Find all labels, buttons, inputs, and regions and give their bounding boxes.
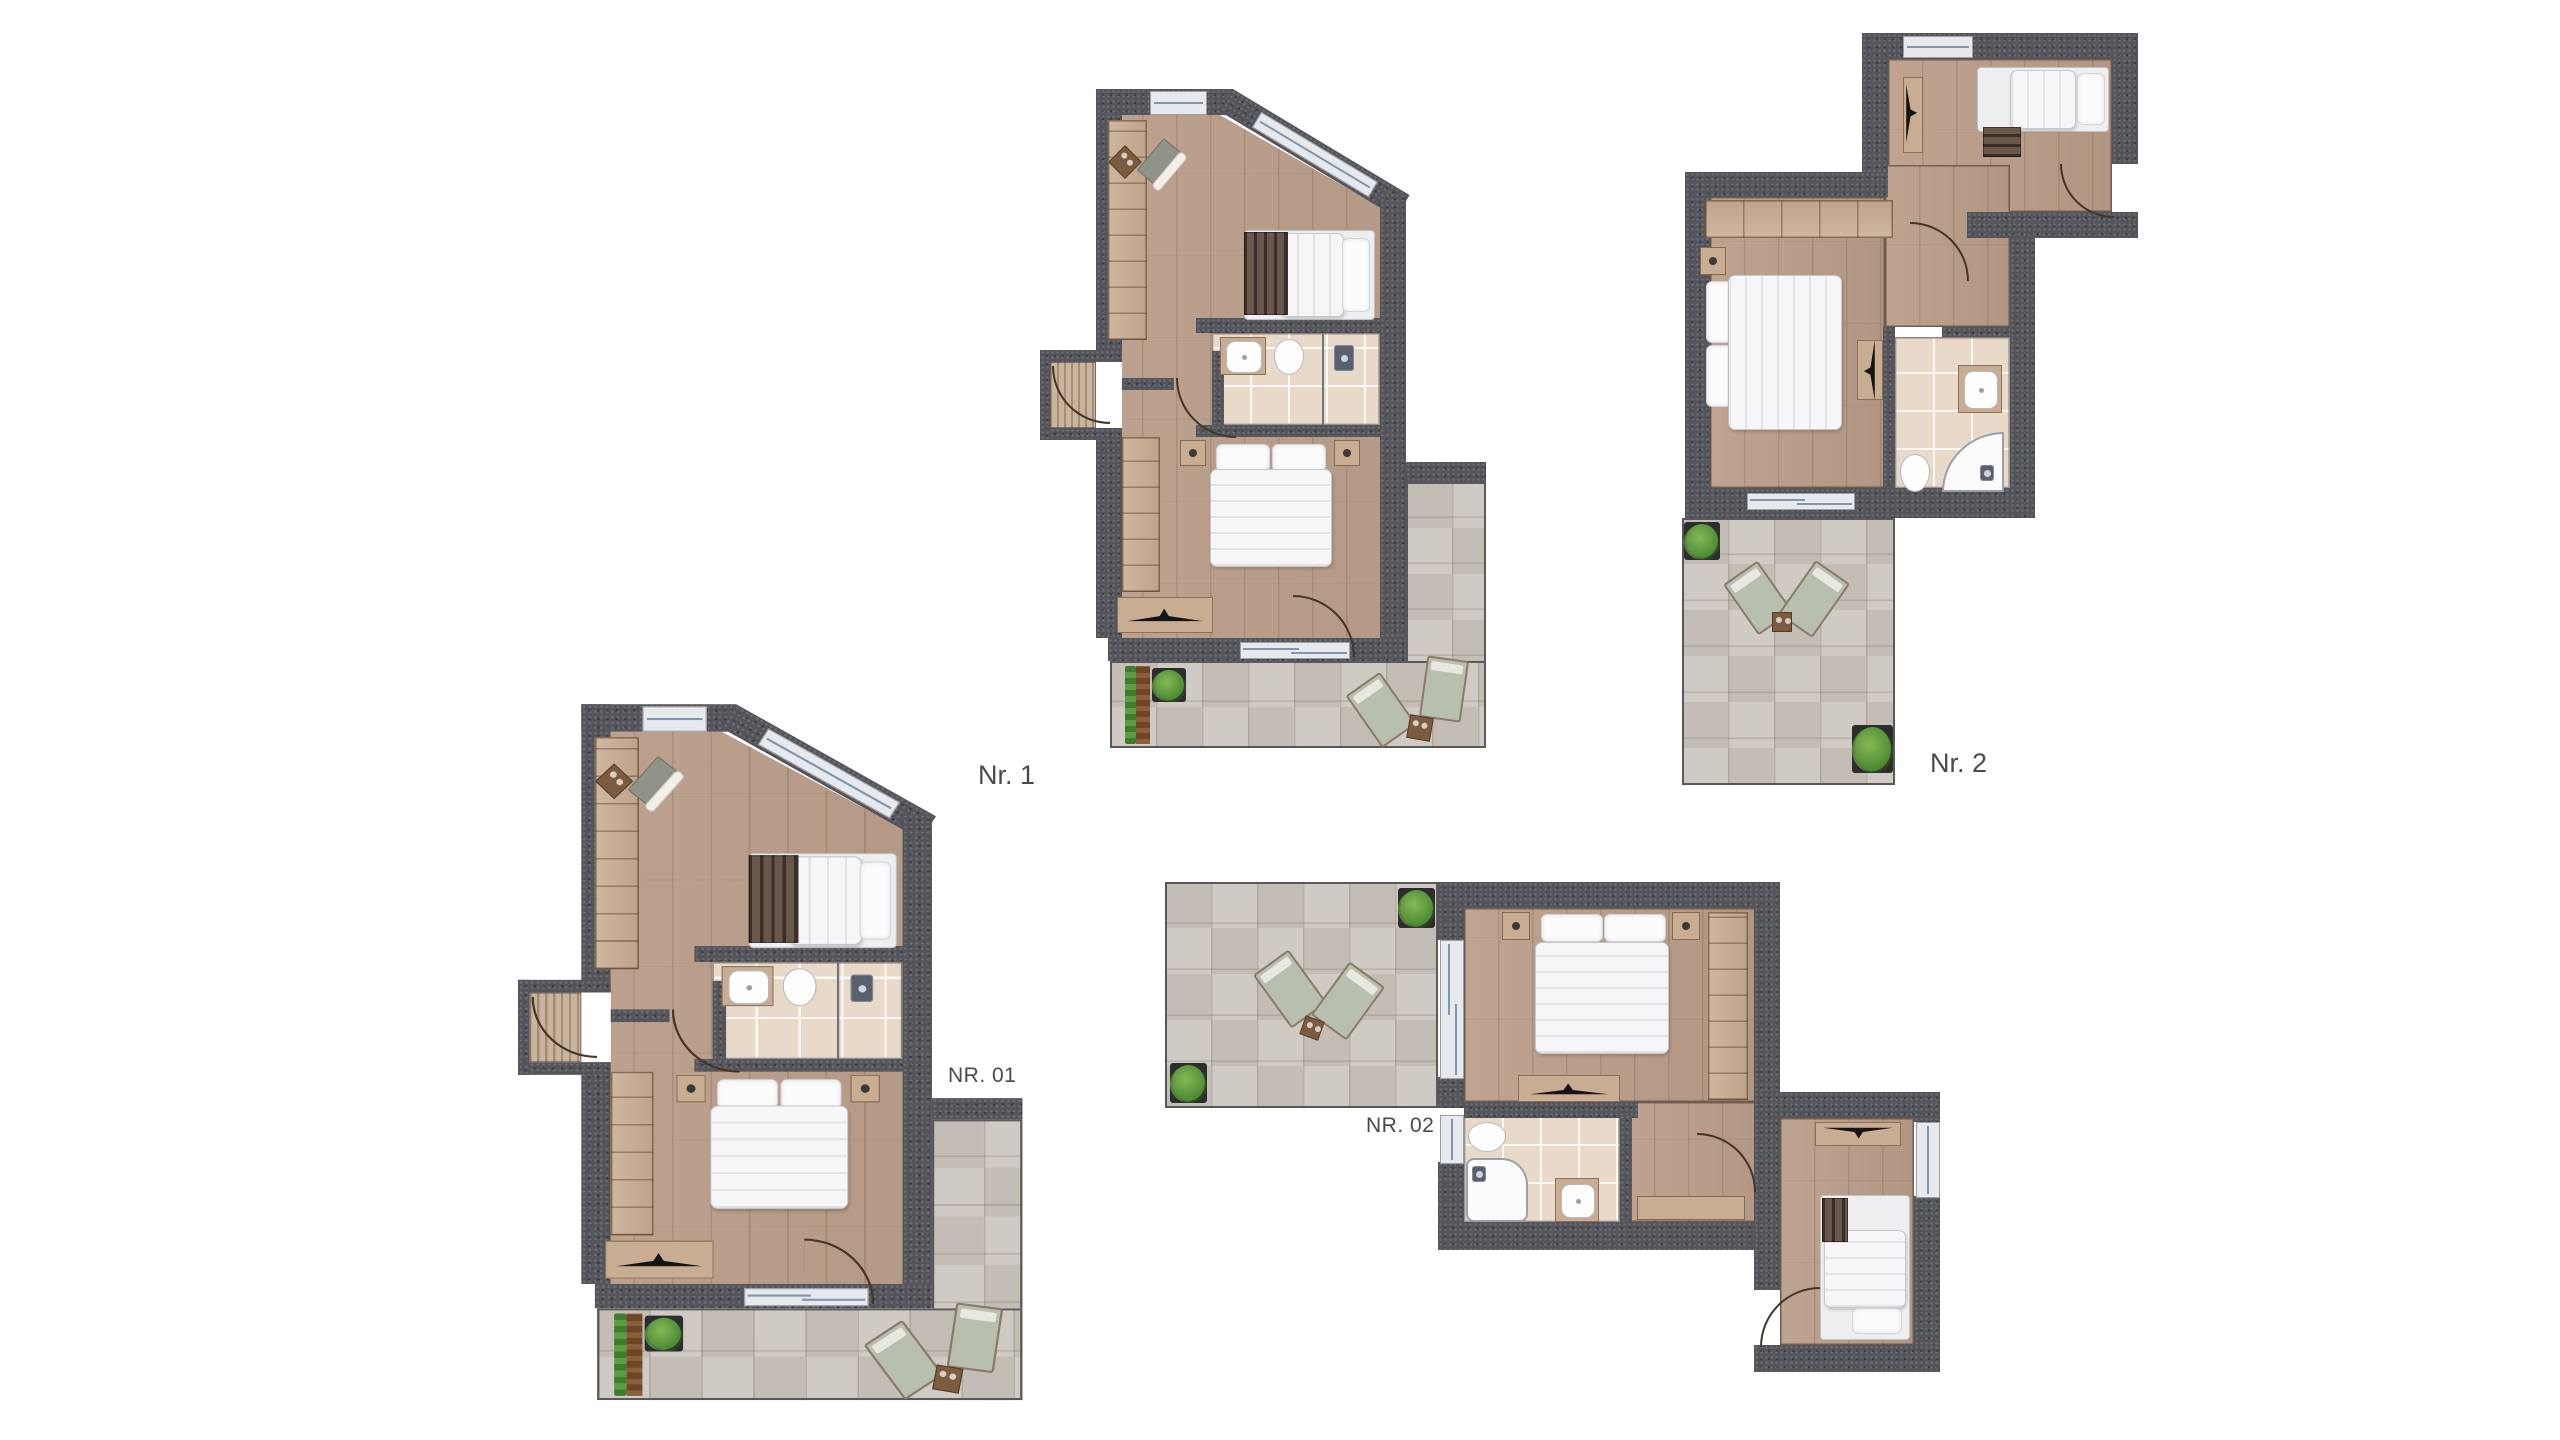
detail-shape: [1682, 922, 1690, 930]
hedge-planter: [1136, 666, 1150, 744]
wardrobe: [1705, 200, 1893, 238]
tv-sideboard: [1117, 597, 1213, 633]
double-bed-duvet: [1535, 942, 1669, 1054]
detail-shape: [1512, 922, 1520, 930]
detail-shape: [1776, 617, 1782, 623]
glass-partition: [837, 962, 839, 1059]
tv-icon: [1823, 1127, 1893, 1140]
wall-segment: [518, 980, 529, 1075]
SVGAnimatedString]: [1127, 609, 1203, 622]
detail-shape: [1709, 257, 1717, 265]
detail-shape: [1448, 944, 1450, 1015]
headboard-shelf: [749, 855, 799, 943]
pillow: [1541, 914, 1603, 942]
hedge: [614, 1314, 626, 1396]
headboard-shelf: [1244, 232, 1288, 315]
detail-shape: [1984, 470, 1991, 477]
pillow: [1272, 444, 1326, 472]
tv-icon: [1906, 85, 1919, 143]
glass-partition: [1322, 333, 1324, 425]
potted-plant: [1152, 668, 1186, 702]
pillow: [1604, 914, 1666, 942]
detail-shape: [1686, 524, 1718, 558]
detail-shape: [609, 770, 619, 779]
detail-shape: [1154, 102, 1203, 104]
shower-head: [851, 975, 874, 1002]
detail-shape: [1750, 499, 1805, 501]
tv-icon: [1863, 341, 1876, 401]
detail-shape: [1797, 503, 1852, 505]
wall-segment: [1862, 33, 1888, 172]
window: [1903, 36, 1973, 58]
sun-lounger: [947, 1302, 1004, 1373]
sink: [728, 970, 769, 1004]
plan-label-nr-2: Nr. 2: [1930, 748, 1987, 779]
wall-segment: [1380, 193, 1406, 638]
window: [1916, 1122, 1940, 1198]
detail-shape: [1172, 1065, 1205, 1101]
wall-segment: [1883, 327, 1895, 488]
potted-plant: [1398, 888, 1435, 928]
detail-shape: [1242, 355, 1247, 360]
tv-sideboard: [1857, 340, 1883, 400]
wall-segment: [694, 946, 902, 962]
detail-shape: [1907, 46, 1969, 48]
SVGAnimatedString]: [616, 1253, 702, 1266]
detail-shape: [647, 718, 702, 720]
detail-shape: [1431, 661, 1464, 674]
wall-segment: [1464, 1102, 1638, 1118]
detail-shape: [1476, 1171, 1483, 1178]
wall-segment: [611, 1009, 670, 1022]
sliding-door: [1440, 940, 1464, 1079]
bathroom-window: [1440, 1115, 1464, 1164]
double-bed-duvet: [1210, 469, 1332, 567]
plan-label-nr-02: NR. 02: [1366, 1114, 1434, 1138]
wall-segment: [1040, 350, 1050, 440]
potted-plant: [1170, 1063, 1207, 1103]
hedge: [1125, 666, 1136, 744]
wall-segment: [1438, 1077, 1464, 1108]
detail-shape: [858, 985, 866, 992]
plan-label-nr-01: NR. 01: [948, 1064, 1016, 1088]
plan-label-nr-1: Nr. 1: [978, 760, 1035, 791]
wall-segment: [903, 814, 932, 1284]
wall-segment: [1438, 1222, 1632, 1250]
nightstand: [1700, 247, 1726, 275]
detail-shape: [647, 1318, 681, 1350]
floor-plan-nr-2: [1680, 25, 2138, 787]
wall-segment: [1754, 882, 1780, 1094]
wardrobe: [611, 1072, 654, 1236]
wall-segment: [1040, 350, 1122, 362]
sun-lounger: [1419, 655, 1469, 722]
wardrobe: [1122, 437, 1160, 592]
tv-icon: [1530, 1082, 1608, 1095]
wall-segment: [1620, 1115, 1632, 1222]
potted-plant: [1684, 522, 1720, 560]
nightstand: [676, 1075, 705, 1102]
detail-shape: [1341, 355, 1348, 362]
nightstand: [851, 1075, 880, 1102]
tv-icon: [1127, 607, 1203, 622]
wall-segment: [1754, 1345, 1940, 1372]
window: [642, 706, 706, 731]
shower-head: [1334, 345, 1354, 371]
wall-segment: [1754, 1092, 1940, 1118]
SVGAnimatedString]: [1906, 85, 1917, 143]
bench: [1637, 1196, 1745, 1220]
detail-shape: [1412, 720, 1419, 727]
potted-plant: [645, 1316, 683, 1352]
headboard-shelf: [1822, 1198, 1848, 1242]
detail-shape: [1243, 648, 1299, 650]
side-table: [1406, 714, 1434, 742]
shower-head: [1980, 465, 1994, 481]
sink: [1226, 341, 1262, 373]
detail-shape: [1455, 1004, 1457, 1075]
pillow: [717, 1079, 778, 1109]
detail-shape: [1854, 727, 1891, 771]
detail-shape: [1120, 151, 1128, 159]
pillow: [1342, 238, 1370, 312]
single-bed-duvet: [789, 856, 861, 945]
detail-shape: [746, 985, 752, 990]
potted-plant: [1852, 725, 1893, 773]
wall-segment: [518, 980, 611, 993]
detail-shape: [1189, 449, 1197, 457]
SVGAnimatedString]: [1864, 341, 1875, 401]
headboard-shelf: [1983, 127, 2021, 157]
detail-shape: [1576, 1199, 1581, 1204]
wall-segment: [1406, 462, 1486, 482]
nightstand: [1180, 440, 1206, 466]
wall-segment: [2010, 238, 2035, 518]
pillow: [780, 1079, 841, 1109]
detail-shape: [748, 1294, 812, 1296]
wall-segment: [1914, 1092, 1940, 1122]
nightstand: [1672, 912, 1700, 940]
floor-plan-nr-1: [1040, 85, 1492, 748]
wall-segment: [1685, 172, 1888, 197]
detail-shape: [1154, 670, 1184, 700]
door-arc: [1760, 1287, 1820, 1347]
detail-shape: [1451, 1119, 1453, 1160]
tv-icon: [616, 1251, 702, 1267]
wall-segment: [1438, 882, 1464, 940]
wall-segment: [1438, 882, 1780, 908]
floor-plan-nr-01: [518, 700, 1029, 1400]
detail-shape: [1306, 1021, 1314, 1029]
detail-shape: [1343, 449, 1351, 457]
pillow: [2077, 73, 2105, 125]
sink: [1964, 371, 1998, 409]
side-table: [1772, 612, 1792, 632]
wall-segment: [1754, 1118, 1780, 1290]
wall-segment: [1607, 1222, 1754, 1250]
wall-segment: [932, 1098, 1022, 1119]
detail-shape: [687, 1084, 696, 1092]
tv-sideboard: [1903, 77, 1923, 153]
tv-sideboard: [1518, 1075, 1620, 1102]
SVGAnimatedString]: [1823, 1128, 1893, 1139]
wall-segment: [1040, 428, 1122, 440]
SVGAnimatedString]: [1530, 1083, 1608, 1094]
floor-plan-nr-02: [1160, 878, 1940, 1375]
sink: [1561, 1184, 1595, 1218]
sliding-door: [1747, 493, 1855, 510]
detail-shape: [960, 1308, 997, 1322]
pillow: [1852, 1308, 1902, 1334]
detail-shape: [1979, 388, 1984, 393]
nightstand: [1502, 912, 1530, 940]
detail-shape: [939, 1370, 947, 1377]
wall-segment: [1196, 318, 1380, 333]
detail-shape: [1927, 1126, 1929, 1194]
side-table: [932, 1364, 963, 1393]
pillow: [860, 862, 892, 940]
single-bed-duvet: [1280, 233, 1344, 317]
tv-sideboard: [605, 1241, 714, 1279]
floor-plan-sheet: Nr. 1 Nr. 2 NR. 01 NR. 02: [0, 0, 2560, 1440]
wall-segment: [1685, 488, 2035, 518]
double-bed-duvet: [710, 1106, 848, 1209]
wall-segment: [518, 1062, 611, 1075]
wall-segment: [2112, 33, 2138, 164]
wall-segment: [1122, 378, 1174, 390]
shower-head: [1472, 1166, 1486, 1182]
detail-shape: [861, 1084, 870, 1092]
nightstand: [1334, 440, 1360, 466]
wall-segment: [1942, 327, 2010, 337]
hedge-planter: [627, 1314, 643, 1396]
pillow: [1216, 444, 1270, 472]
window: [1150, 91, 1207, 115]
detail-shape: [1400, 890, 1433, 926]
wardrobe: [1708, 912, 1748, 1100]
single-bed-duvet: [2010, 70, 2076, 129]
double-bed-duvet: [1728, 275, 1842, 430]
tv-sideboard: [1815, 1122, 1901, 1146]
